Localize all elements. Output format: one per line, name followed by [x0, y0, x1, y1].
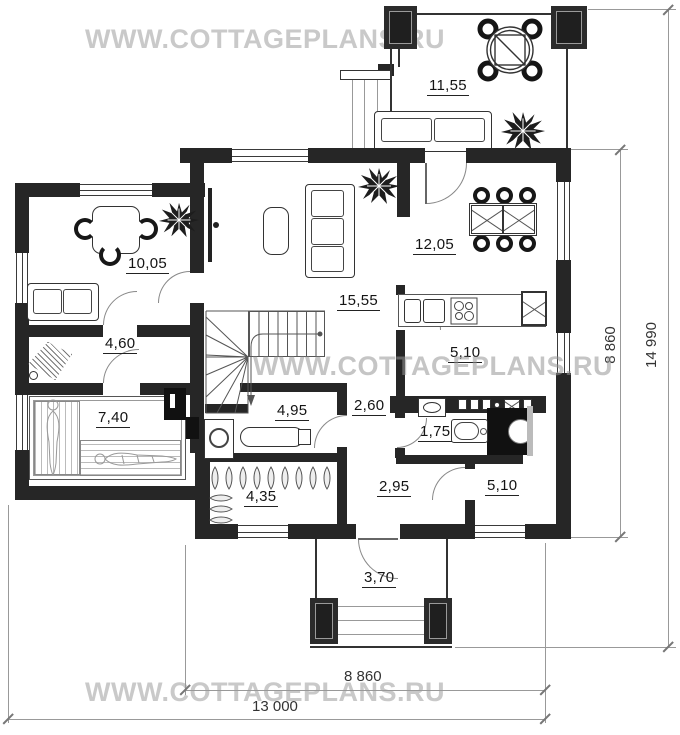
extension-line: [455, 647, 676, 648]
sofa-cushion: [434, 118, 485, 142]
room-label-bathroom: 1,75: [418, 423, 452, 442]
window: [475, 525, 525, 538]
chair: [496, 187, 513, 204]
room-label-laundry: 4,95: [275, 402, 309, 421]
door-leaf: [425, 163, 427, 204]
kitchen-sink: [423, 299, 445, 323]
extension-line: [588, 9, 676, 10]
bathtub-basin: [454, 422, 479, 440]
dining-table-leaf: [503, 205, 535, 234]
door-arc: [426, 163, 467, 204]
chair: [519, 235, 536, 252]
person-figure: [38, 397, 68, 477]
door-arc: [103, 349, 139, 383]
wall: [466, 148, 570, 163]
wall: [337, 462, 347, 524]
terrace-pillar-right: [551, 6, 587, 49]
sofa-cushion: [311, 190, 344, 217]
floor-plan: WWW.COTTAGEPLANS.RU WWW.COTTAGEPLANS.RU …: [0, 0, 680, 735]
washing-machine-drum: [209, 428, 229, 448]
wall: [288, 524, 356, 539]
dining-table-leaf: [471, 205, 503, 234]
door-arc: [432, 467, 465, 500]
dimension-label-width-outer: 13 000: [252, 698, 298, 715]
watermark-middle: WWW.COTTAGEPLANS.RU: [253, 351, 613, 382]
door-arc: [158, 271, 190, 303]
chair: [473, 187, 490, 204]
wall: [15, 486, 200, 500]
wall: [15, 383, 103, 395]
terrace-table-set: [472, 12, 548, 88]
plant-icon: [158, 200, 200, 240]
wall: [400, 524, 475, 539]
kitchen-sink: [404, 299, 421, 323]
room-label-room-bottom-right: 5,10: [485, 477, 519, 496]
porch-base: [310, 646, 452, 648]
hanger-column: [209, 492, 235, 526]
terrace-stair-landing: [340, 70, 392, 80]
wall: [395, 396, 405, 418]
dimension-label-width-inner: 8 860: [344, 668, 382, 685]
sauna-heater-handle: [170, 394, 175, 408]
wall: [337, 383, 347, 415]
porch-step: [338, 620, 424, 621]
room-label-terrace: 11,55: [427, 77, 469, 96]
chair: [473, 235, 490, 252]
plant-icon: [356, 166, 402, 206]
sofa-cushion: [63, 289, 92, 314]
chair: [496, 235, 513, 252]
chair: [136, 218, 158, 240]
sofa-cushion: [381, 118, 432, 142]
extension-line: [185, 545, 186, 695]
hanger-row: [208, 466, 334, 490]
chair: [519, 187, 536, 204]
extension-line: [8, 505, 9, 723]
dimension-line: [668, 10, 669, 648]
door-arc: [314, 415, 347, 448]
window: [232, 149, 308, 162]
window: [80, 184, 152, 196]
wall: [308, 148, 425, 163]
fireplace-frame: [527, 406, 533, 456]
chair: [99, 244, 121, 266]
room-label-sauna: 7,40: [96, 409, 130, 428]
shelf-box: [470, 399, 479, 410]
stove-icon: [450, 297, 478, 325]
terrace-pillar-left: [384, 6, 417, 49]
porch-edge: [446, 539, 448, 599]
window: [238, 525, 288, 538]
wall: [556, 260, 571, 333]
door-leaf: [358, 538, 398, 540]
room-label-dining: 12,05: [413, 236, 456, 255]
wall: [15, 183, 29, 253]
porch-step: [338, 606, 424, 607]
wall: [152, 183, 205, 197]
room-label-hall-small: 4,60: [103, 335, 137, 354]
dimension-label-height-outer: 14 990: [642, 310, 662, 380]
tv-mount: [213, 222, 219, 228]
dimension-line: [8, 719, 545, 720]
extension-line: [545, 543, 546, 723]
sauna-heater: [164, 388, 186, 420]
bathtub-drain: [480, 428, 487, 435]
porch-step: [338, 634, 424, 635]
terrace-stair-line: [352, 80, 353, 150]
terrace-edge-right: [566, 47, 568, 150]
person-figure: [92, 446, 178, 472]
ironing-board: [240, 427, 304, 447]
porch-pillar-right: [424, 598, 452, 644]
wall: [396, 455, 523, 464]
room-label-room-top-left: 10,05: [126, 255, 169, 274]
wall: [180, 148, 232, 163]
wall: [556, 148, 571, 182]
sauna-control: [186, 417, 199, 439]
wall: [465, 500, 475, 524]
room-label-corridor: 2,60: [352, 397, 386, 416]
vent-shaft: [521, 291, 547, 326]
dimension-line: [185, 690, 545, 691]
stool: [29, 371, 38, 380]
porch-edge: [315, 539, 317, 599]
plant-icon: [498, 110, 548, 152]
room-label-wardrobe: 4,35: [244, 488, 278, 507]
ironing-board-leg: [298, 429, 311, 445]
sink-basin: [423, 402, 441, 413]
tv-panel: [208, 188, 212, 262]
room-label-living: 15,55: [337, 292, 380, 311]
window: [16, 395, 28, 450]
wall: [29, 325, 103, 337]
sofa-cushion: [311, 246, 344, 272]
terrace-stair-line: [364, 80, 365, 150]
door-arc: [103, 291, 137, 325]
room-label-hall: 2,95: [377, 478, 411, 497]
room-label-porch: 3,70: [362, 569, 396, 588]
wall: [525, 524, 571, 539]
coffee-table: [263, 207, 289, 255]
chair: [74, 218, 96, 240]
terrace-rail-post: [398, 49, 400, 67]
wall: [137, 325, 199, 337]
wall: [465, 455, 475, 469]
window: [557, 182, 570, 260]
wall: [556, 373, 571, 538]
sofa-cushion: [33, 289, 62, 314]
porch-pillar-left: [310, 598, 338, 644]
sofa-cushion: [311, 218, 344, 245]
shelf-box: [458, 399, 467, 410]
